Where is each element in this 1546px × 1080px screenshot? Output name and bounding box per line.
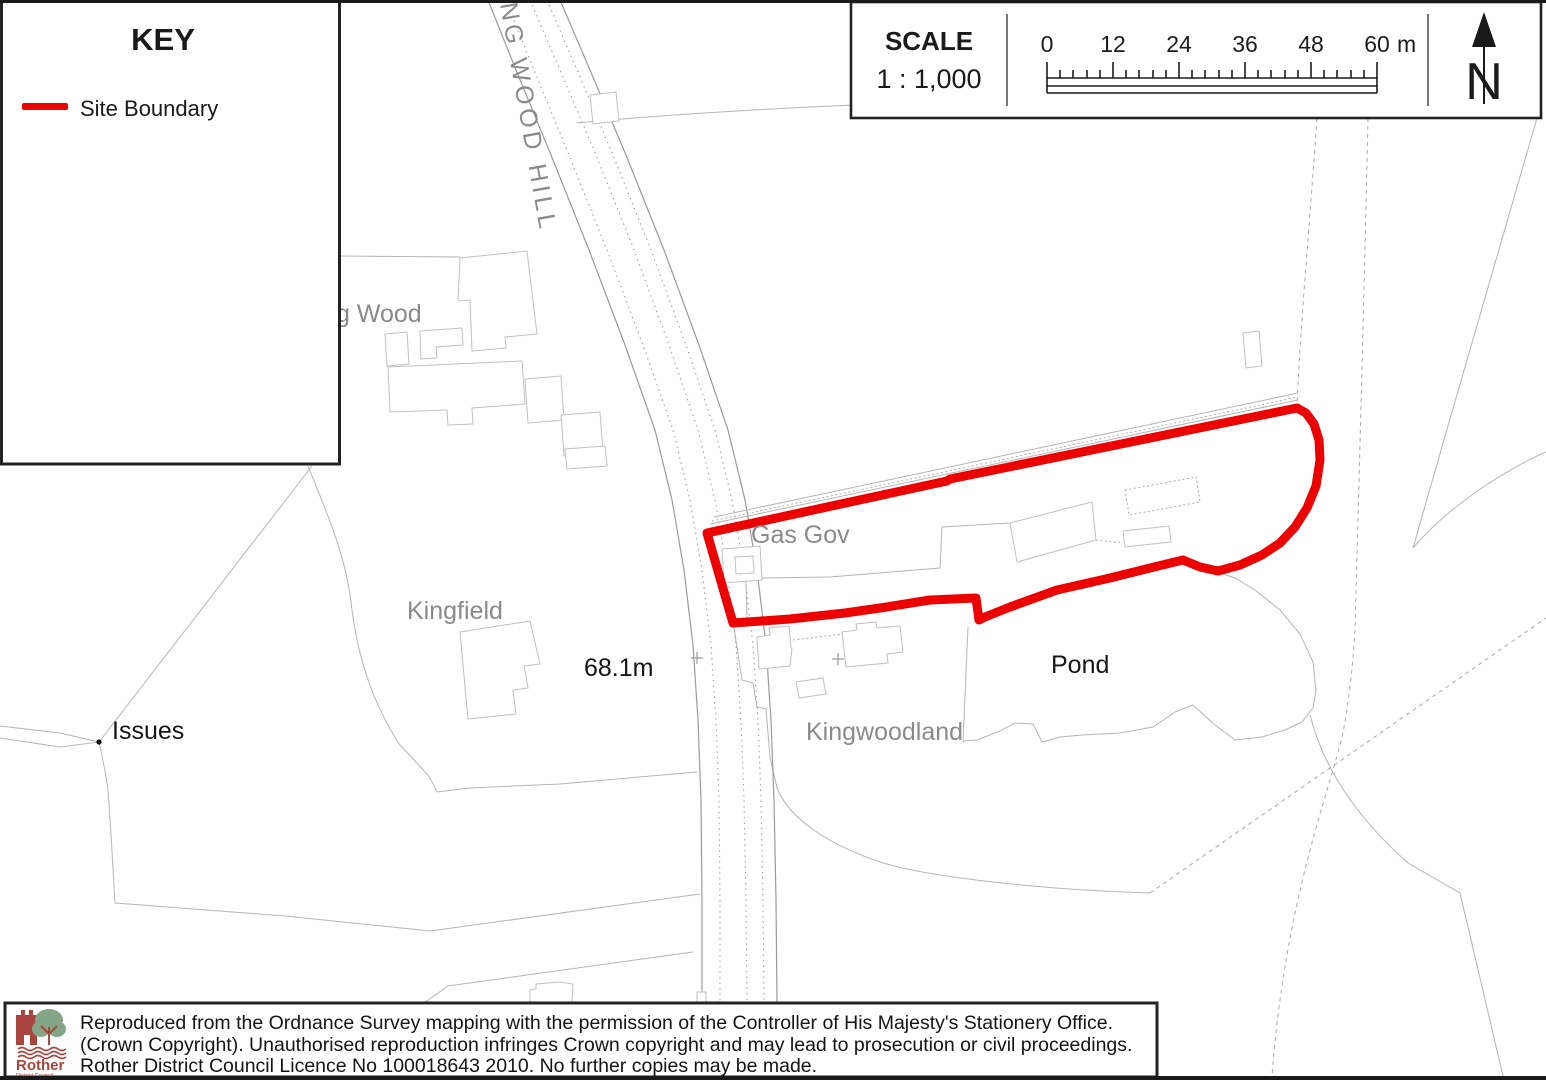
building — [420, 328, 463, 359]
pond-south-line — [1310, 715, 1503, 1076]
building — [796, 678, 826, 698]
building — [757, 626, 792, 669]
site-north-track — [710, 393, 1298, 524]
parcel-dotted — [1096, 540, 1123, 543]
scale-panel-box — [851, 2, 1541, 118]
north-letter: N — [1465, 53, 1503, 111]
kingwoodland-label: Kingwoodland — [806, 718, 963, 746]
site-boundary-swatch — [22, 103, 68, 110]
parcel-dashed-diagonal — [1150, 618, 1546, 893]
wood-label: g Wood — [336, 300, 422, 328]
footer-line-2: (Crown Copyright). Unauthorised reproduc… — [80, 1034, 1132, 1056]
site-boundary-legend-label: Site Boundary — [80, 96, 218, 121]
cross-marker — [832, 653, 844, 665]
building — [525, 376, 564, 423]
building — [697, 992, 706, 1002]
field-line — [1413, 118, 1537, 548]
track-line — [714, 393, 1298, 517]
issues-label: Issues — [112, 717, 184, 745]
scale-tick-label: 0 — [1041, 31, 1054, 57]
scale-panel: SCALE 1 : 1,000 0 12 24 36 48 60 m N — [851, 2, 1541, 118]
parcel-dotted — [793, 634, 843, 640]
pond-outline — [963, 627, 968, 743]
building — [385, 332, 409, 366]
building — [842, 622, 903, 667]
footer-line-3: Rother District Council Licence No 10001… — [80, 1055, 817, 1077]
track-line — [710, 400, 1298, 524]
scale-ratio: 1 : 1,000 — [876, 64, 981, 94]
field-line — [0, 726, 99, 742]
footer-line-1: Reproduced from the Ordnance Survey mapp… — [80, 1012, 1113, 1034]
building — [565, 446, 607, 469]
cross-marker — [691, 652, 703, 664]
field-line — [340, 256, 460, 257]
scale-tick-label: 36 — [1232, 31, 1258, 57]
key-panel: KEY Site Boundary — [2, 0, 340, 464]
road-edge-east — [560, 0, 777, 1003]
scale-title: SCALE — [885, 26, 973, 56]
scale-tick-label: 24 — [1166, 31, 1192, 57]
page-top-border — [0, 0, 1546, 3]
building — [590, 92, 619, 124]
road-dotted-line — [530, 0, 747, 1003]
kingfield-label: Kingfield — [407, 597, 503, 625]
field-line — [0, 738, 99, 747]
building — [458, 251, 537, 351]
scale-tick-label: 48 — [1298, 31, 1324, 57]
field-line — [99, 742, 700, 931]
spot-height-label: 68.1m — [584, 654, 653, 682]
building — [388, 361, 525, 425]
road-name-label: NG WOOD HILL — [494, 0, 562, 234]
track-dashed-line — [1272, 118, 1368, 1076]
building — [1123, 526, 1171, 547]
building — [1243, 331, 1262, 368]
pond-label: Pond — [1051, 651, 1109, 679]
page-bottom-border — [0, 1076, 1546, 1080]
building — [1010, 502, 1096, 562]
field-line — [99, 466, 312, 742]
gas-governor-inner — [735, 556, 754, 574]
building-dashed — [1125, 477, 1200, 515]
site-plan-canvas: NG WOOD HILL g Wood Gas Gov Kingfield 68… — [0, 0, 1546, 1080]
key-panel-box — [2, 0, 340, 464]
track-dotted — [712, 397, 1298, 521]
parcel-line — [746, 583, 747, 618]
site-boundary — [707, 408, 1320, 623]
scale-unit: m — [1397, 31, 1416, 57]
logo-castle-door — [24, 1035, 30, 1045]
footer-panel: Rother District Council Reproduced from … — [5, 1003, 1157, 1079]
logo-title: Rother — [16, 1057, 64, 1074]
track-dashed-line — [1297, 118, 1317, 406]
key-title: KEY — [131, 22, 195, 57]
building — [530, 982, 573, 1002]
logo-tree-foliage — [32, 1021, 50, 1037]
issues-dot — [96, 739, 101, 744]
gas-gov-label: Gas Gov — [751, 521, 850, 549]
scale-tick-label: 12 — [1100, 31, 1126, 57]
logo-tree-foliage — [48, 1021, 66, 1037]
site-plan-page: NG WOOD HILL g Wood Gas Gov Kingfield 68… — [0, 0, 1546, 1080]
kingfield-house — [460, 621, 540, 719]
field-line — [1413, 452, 1546, 548]
pond-outline — [963, 573, 1316, 742]
road-dotted-line — [547, 0, 764, 1003]
scale-tick-label: 60 — [1364, 31, 1390, 57]
